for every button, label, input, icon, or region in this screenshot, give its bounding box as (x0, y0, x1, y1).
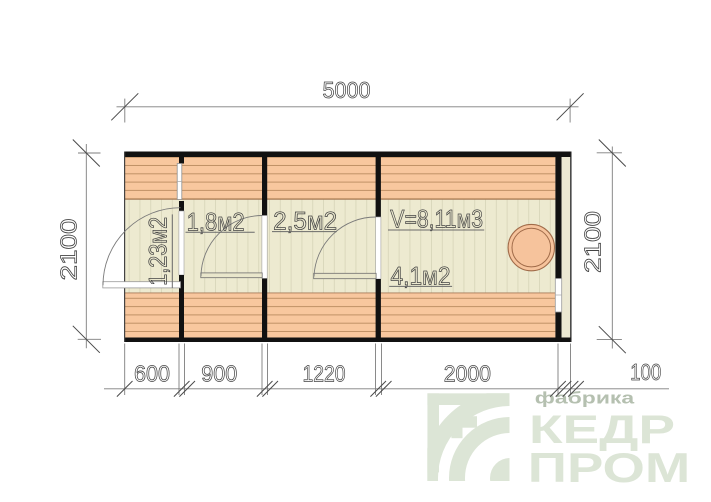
svg-text:2100: 2100 (56, 219, 82, 281)
svg-text:1220: 1220 (303, 361, 346, 387)
svg-text:V=8,11м3: V=8,11м3 (390, 206, 483, 234)
svg-text:фабрика: фабрика (535, 389, 635, 408)
svg-text:2000: 2000 (444, 361, 491, 387)
svg-text:100: 100 (630, 359, 661, 385)
svg-text:2100: 2100 (580, 211, 606, 273)
svg-text:5000: 5000 (323, 77, 371, 103)
svg-text:1,23м2: 1,23м2 (145, 217, 173, 286)
svg-text:600: 600 (134, 361, 170, 387)
svg-text:ПРОМ: ПРОМ (528, 444, 691, 491)
svg-text:900: 900 (201, 361, 237, 387)
